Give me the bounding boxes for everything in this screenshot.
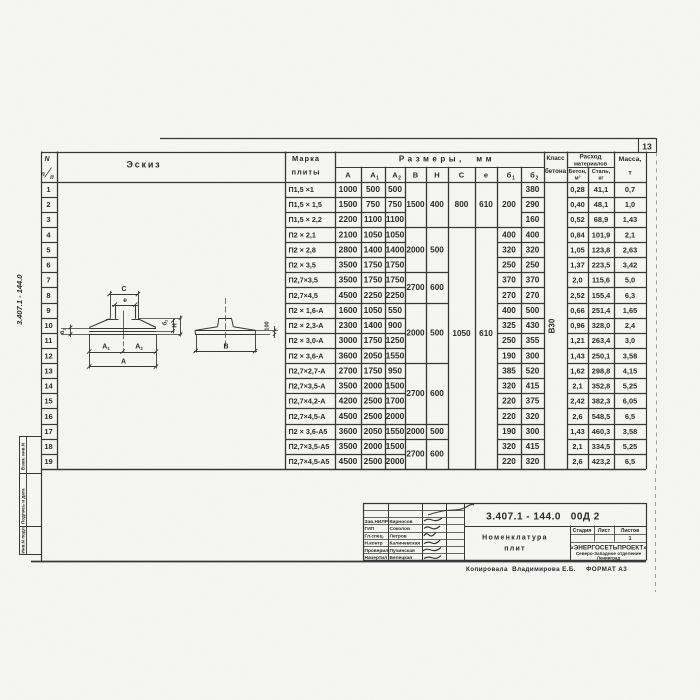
svg-text:2: 2 bbox=[398, 176, 401, 182]
svg-text:6: 6 bbox=[46, 261, 50, 270]
svg-text:1750: 1750 bbox=[364, 275, 383, 285]
svg-text:1600: 1600 bbox=[339, 305, 358, 315]
svg-text:Копировала Владимирова Е.Б.: Копировала Владимирова Е.Б. bbox=[466, 566, 576, 573]
svg-text:3000: 3000 bbox=[339, 335, 358, 345]
svg-text:П2,7×3,5: П2,7×3,5 bbox=[289, 276, 318, 285]
svg-text:2050: 2050 bbox=[364, 350, 383, 360]
svg-text:П2,7×4,2-А: П2,7×4,2-А bbox=[289, 397, 326, 406]
svg-text:кг: кг bbox=[598, 175, 604, 181]
svg-text:190: 190 bbox=[502, 351, 516, 360]
svg-text:1750: 1750 bbox=[364, 365, 383, 375]
svg-text:5,0: 5,0 bbox=[625, 276, 635, 285]
svg-text:2000: 2000 bbox=[406, 245, 425, 254]
svg-text:190: 190 bbox=[502, 427, 516, 436]
svg-text:ФОРМАТ А3: ФОРМАТ А3 bbox=[586, 566, 627, 573]
svg-text:1: 1 bbox=[512, 176, 515, 182]
svg-text:2,0: 2,0 bbox=[572, 276, 582, 285]
svg-text:270: 270 bbox=[526, 291, 540, 300]
svg-text:600: 600 bbox=[430, 450, 444, 459]
svg-text:2,6: 2,6 bbox=[572, 457, 582, 466]
svg-text:1,0: 1,0 bbox=[625, 200, 635, 209]
svg-text:Марка: Марка bbox=[292, 154, 320, 163]
svg-text:220: 220 bbox=[502, 412, 516, 421]
svg-text:200: 200 bbox=[502, 200, 516, 209]
svg-text:500: 500 bbox=[430, 329, 444, 338]
svg-text:9: 9 bbox=[46, 306, 50, 315]
svg-text:1100: 1100 bbox=[364, 214, 383, 224]
svg-text:Листов: Листов bbox=[621, 528, 640, 534]
svg-text:2,42: 2,42 bbox=[570, 397, 584, 406]
svg-text:1500: 1500 bbox=[386, 381, 405, 391]
svg-text:380: 380 bbox=[526, 185, 540, 194]
svg-text:950: 950 bbox=[388, 365, 402, 375]
svg-text:м³: м³ bbox=[574, 174, 580, 181]
svg-text:Зав.НИЛР: Зав.НИЛР bbox=[365, 519, 389, 525]
svg-text:16: 16 bbox=[44, 412, 52, 421]
svg-text:320: 320 bbox=[502, 442, 516, 451]
svg-text:П1,5 × 1,5: П1,5 × 1,5 bbox=[289, 200, 322, 209]
svg-text:1500: 1500 bbox=[406, 200, 425, 209]
svg-text:334,5: 334,5 bbox=[592, 442, 611, 451]
svg-text:300: 300 bbox=[526, 427, 540, 436]
svg-text:2: 2 bbox=[46, 200, 50, 209]
svg-text:3,58: 3,58 bbox=[623, 351, 637, 360]
svg-text:Размеры, мм: Размеры, мм bbox=[399, 155, 495, 164]
svg-text:430: 430 bbox=[526, 321, 540, 330]
svg-text:800: 800 bbox=[455, 200, 469, 209]
svg-text:1550: 1550 bbox=[386, 350, 405, 360]
svg-text:1400: 1400 bbox=[386, 244, 405, 254]
svg-text:270: 270 bbox=[502, 291, 516, 300]
svg-text:2000: 2000 bbox=[364, 381, 383, 391]
svg-text:320: 320 bbox=[526, 457, 540, 466]
svg-text:В: В bbox=[223, 344, 228, 351]
svg-text:Калиневская: Калиневская bbox=[390, 541, 421, 547]
svg-text:375: 375 bbox=[526, 397, 540, 406]
svg-text:2800: 2800 bbox=[339, 244, 358, 254]
svg-text:П2 × 3,6-А5: П2 × 3,6-А5 bbox=[289, 427, 328, 436]
svg-text:415: 415 bbox=[526, 442, 540, 451]
svg-text:328,0: 328,0 bbox=[592, 321, 611, 330]
svg-text:Расход: Расход bbox=[580, 154, 602, 161]
svg-text:1400: 1400 bbox=[364, 244, 383, 254]
svg-text:6,3: 6,3 bbox=[625, 291, 635, 300]
svg-text:1550: 1550 bbox=[386, 426, 405, 436]
svg-text:4500: 4500 bbox=[339, 290, 358, 300]
svg-text:2100: 2100 bbox=[339, 229, 358, 239]
svg-text:3,42: 3,42 bbox=[623, 261, 637, 270]
svg-text:Подпись и дата: Подпись и дата bbox=[20, 488, 25, 524]
svg-text:б: б bbox=[507, 171, 512, 180]
svg-text:0,52: 0,52 bbox=[570, 215, 584, 224]
svg-text:250: 250 bbox=[502, 261, 516, 270]
svg-text:2000: 2000 bbox=[406, 329, 425, 338]
svg-text:4500: 4500 bbox=[339, 411, 358, 421]
svg-text:5,25: 5,25 bbox=[623, 442, 637, 451]
svg-text:415: 415 bbox=[526, 382, 540, 391]
svg-text:3500: 3500 bbox=[339, 441, 358, 451]
svg-text:4200: 4200 bbox=[339, 396, 358, 406]
svg-text:223,5: 223,5 bbox=[592, 261, 611, 270]
svg-text:7: 7 bbox=[46, 276, 50, 285]
svg-text:1,43: 1,43 bbox=[570, 351, 584, 360]
svg-text:220: 220 bbox=[502, 397, 516, 406]
svg-text:3600: 3600 bbox=[339, 350, 358, 360]
svg-text:П2,7×4,5-А5: П2,7×4,5-А5 bbox=[289, 457, 330, 466]
svg-text:3,58: 3,58 bbox=[623, 427, 637, 436]
svg-text:11: 11 bbox=[45, 336, 53, 345]
svg-text:385: 385 bbox=[502, 366, 516, 375]
svg-text:А: А bbox=[345, 171, 351, 180]
svg-text:ГИП: ГИП bbox=[365, 526, 375, 532]
svg-text:1: 1 bbox=[628, 536, 631, 542]
svg-text:400: 400 bbox=[430, 200, 444, 209]
svg-text:2700: 2700 bbox=[406, 389, 425, 398]
svg-text:2250: 2250 bbox=[386, 290, 405, 300]
svg-text:п: п bbox=[50, 175, 54, 181]
svg-text:2700: 2700 bbox=[406, 283, 425, 292]
svg-text:100: 100 bbox=[265, 321, 271, 330]
svg-text:Сталь,: Сталь, bbox=[592, 169, 611, 175]
svg-text:1500: 1500 bbox=[339, 199, 358, 209]
svg-text:C: C bbox=[121, 286, 126, 293]
svg-text:2,6: 2,6 bbox=[572, 412, 582, 421]
svg-text:320: 320 bbox=[526, 245, 540, 254]
svg-text:250,1: 250,1 bbox=[592, 351, 611, 360]
svg-text:750: 750 bbox=[388, 199, 402, 209]
svg-text:6,5: 6,5 bbox=[625, 412, 635, 421]
svg-text:1750: 1750 bbox=[386, 260, 405, 270]
svg-text:П2,7×3,5-А5: П2,7×3,5-А5 bbox=[289, 442, 330, 451]
svg-text:В30: В30 bbox=[548, 318, 557, 333]
svg-text:2,1: 2,1 bbox=[625, 230, 635, 239]
svg-text:3,0: 3,0 bbox=[625, 336, 635, 345]
svg-text:П1,5 ×1: П1,5 ×1 bbox=[289, 185, 314, 194]
svg-text:2500: 2500 bbox=[364, 411, 383, 421]
svg-text:1: 1 bbox=[376, 176, 379, 182]
svg-text:1,37: 1,37 bbox=[570, 261, 584, 270]
svg-text:17: 17 bbox=[44, 427, 52, 436]
svg-text:2700: 2700 bbox=[406, 450, 425, 459]
svg-text:2,1: 2,1 bbox=[572, 382, 582, 391]
svg-text:500: 500 bbox=[366, 184, 380, 194]
svg-text:251,4: 251,4 bbox=[592, 306, 611, 315]
svg-text:548,5: 548,5 bbox=[592, 412, 611, 421]
svg-text:1750: 1750 bbox=[364, 260, 383, 270]
svg-text:Номенклатура: Номенклатура bbox=[482, 535, 548, 542]
svg-text:1750: 1750 bbox=[364, 335, 383, 345]
svg-text:П2 × 3,0-А: П2 × 3,0-А bbox=[289, 336, 324, 345]
svg-text:1250: 1250 bbox=[386, 335, 405, 345]
svg-text:2500: 2500 bbox=[364, 456, 383, 466]
svg-text:2200: 2200 bbox=[339, 214, 358, 224]
svg-text:1750: 1750 bbox=[386, 275, 405, 285]
svg-text:8: 8 bbox=[46, 291, 50, 300]
svg-text:3600: 3600 bbox=[339, 426, 358, 436]
svg-text:С: С bbox=[459, 171, 465, 180]
svg-text:13: 13 bbox=[642, 142, 652, 152]
svg-text:Бетон,: Бетон, bbox=[568, 169, 587, 175]
svg-text:500: 500 bbox=[430, 245, 444, 254]
svg-text:300: 300 bbox=[526, 351, 540, 360]
svg-text:П2,7×4,5: П2,7×4,5 bbox=[289, 291, 318, 300]
svg-text:Инв.N подл.: Инв.N подл. bbox=[20, 526, 25, 553]
svg-text:1,62: 1,62 bbox=[570, 366, 584, 375]
svg-text:3500: 3500 bbox=[339, 381, 358, 391]
svg-text:Кирносов: Кирносов bbox=[390, 519, 413, 525]
svg-text:П1,5 × 2,2: П1,5 × 2,2 bbox=[289, 215, 322, 224]
svg-text:2500: 2500 bbox=[364, 396, 383, 406]
svg-text:2,63: 2,63 bbox=[623, 245, 637, 254]
svg-text:1050: 1050 bbox=[364, 229, 383, 239]
svg-text:0,84: 0,84 bbox=[570, 230, 585, 239]
svg-text:550: 550 bbox=[388, 305, 402, 315]
svg-text:Н: Н bbox=[434, 171, 439, 180]
svg-text:1,21: 1,21 bbox=[570, 336, 584, 345]
svg-text:Лист: Лист bbox=[598, 528, 611, 534]
svg-text:П2,7×3,5-А: П2,7×3,5-А bbox=[289, 382, 326, 391]
svg-text:П2 × 2,8: П2 × 2,8 bbox=[289, 245, 316, 254]
svg-text:Н: Н bbox=[173, 323, 179, 327]
svg-text:е: е bbox=[123, 297, 127, 304]
svg-text:4500: 4500 bbox=[339, 456, 358, 466]
svg-text:1700: 1700 bbox=[386, 396, 405, 406]
svg-text:2050: 2050 bbox=[364, 426, 383, 436]
svg-text:2,1: 2,1 bbox=[572, 442, 582, 451]
svg-text:160: 160 bbox=[526, 215, 540, 224]
svg-text:6,5: 6,5 bbox=[625, 457, 635, 466]
svg-text:Петров: Петров bbox=[390, 533, 407, 539]
svg-text:Гл.спец.: Гл.спец. bbox=[365, 533, 384, 539]
svg-text:460,3: 460,3 bbox=[592, 427, 611, 436]
svg-text:бетона: бетона bbox=[545, 168, 567, 175]
svg-text:5: 5 bbox=[46, 245, 50, 254]
svg-text:3500: 3500 bbox=[339, 275, 358, 285]
svg-text:250: 250 bbox=[502, 336, 516, 345]
svg-text:48,1: 48,1 bbox=[594, 200, 608, 209]
svg-text:115,6: 115,6 bbox=[592, 276, 610, 285]
svg-text:П2 × 2,1: П2 × 2,1 bbox=[289, 230, 316, 239]
svg-text:13: 13 bbox=[44, 366, 52, 375]
svg-text:3: 3 bbox=[46, 215, 50, 224]
svg-text:155,4: 155,4 bbox=[592, 291, 611, 300]
svg-text:1500: 1500 bbox=[386, 441, 405, 451]
svg-text:0,7: 0,7 bbox=[625, 185, 635, 194]
svg-text:2300: 2300 bbox=[339, 320, 358, 330]
svg-text:0,96: 0,96 bbox=[570, 321, 584, 330]
svg-text:2000: 2000 bbox=[386, 456, 405, 466]
svg-text:1050: 1050 bbox=[386, 229, 405, 239]
svg-text:плит: плит bbox=[504, 546, 526, 553]
svg-text:370: 370 bbox=[502, 276, 516, 285]
svg-text:68,9: 68,9 bbox=[594, 215, 608, 224]
svg-text:1100: 1100 bbox=[386, 214, 405, 224]
svg-text:3.407.1 - 144.0: 3.407.1 - 144.0 bbox=[15, 274, 24, 325]
svg-text:18: 18 bbox=[44, 442, 52, 451]
svg-text:325: 325 bbox=[502, 321, 516, 330]
svg-text:370: 370 bbox=[526, 276, 540, 285]
svg-text:1,65: 1,65 bbox=[623, 306, 637, 315]
svg-text:0,28: 0,28 bbox=[570, 185, 584, 194]
svg-text:Проверил: Проверил bbox=[365, 548, 389, 554]
svg-text:352,8: 352,8 bbox=[592, 382, 611, 391]
svg-text:плиты: плиты bbox=[292, 168, 321, 177]
svg-text:Белецкая: Белецкая bbox=[390, 555, 413, 561]
svg-text:2700: 2700 bbox=[339, 365, 358, 375]
svg-text:500: 500 bbox=[430, 427, 444, 436]
svg-text:Н.контр: Н.контр bbox=[365, 541, 383, 547]
svg-text:263,4: 263,4 bbox=[592, 336, 611, 345]
svg-text:15: 15 bbox=[44, 397, 52, 406]
svg-text:П2,7×4,5-А: П2,7×4,5-А bbox=[289, 412, 326, 421]
svg-text:1: 1 bbox=[46, 185, 50, 194]
svg-text:19: 19 bbox=[44, 457, 52, 466]
svg-text:1050: 1050 bbox=[452, 329, 471, 338]
svg-text:3500: 3500 bbox=[339, 260, 358, 270]
svg-text:В: В bbox=[413, 171, 419, 180]
svg-text:101,9: 101,9 bbox=[592, 230, 611, 239]
svg-text:2: 2 bbox=[536, 176, 539, 182]
svg-text:4,15: 4,15 bbox=[623, 366, 637, 375]
svg-text:Пучинская: Пучинская bbox=[390, 548, 415, 554]
svg-text:2250: 2250 bbox=[364, 290, 383, 300]
svg-text:900: 900 bbox=[388, 320, 402, 330]
svg-text:41,1: 41,1 bbox=[594, 185, 608, 194]
svg-text:320: 320 bbox=[502, 245, 516, 254]
svg-text:320: 320 bbox=[502, 382, 516, 391]
svg-text:Ленинград: Ленинград bbox=[597, 555, 620, 560]
svg-text:материалов: материалов bbox=[574, 161, 608, 167]
svg-text:е: е bbox=[484, 171, 488, 180]
svg-text:Масса,: Масса, bbox=[619, 156, 642, 163]
svg-text:2000: 2000 bbox=[364, 441, 383, 451]
svg-text:14: 14 bbox=[44, 382, 53, 391]
svg-text:320: 320 bbox=[526, 412, 540, 421]
svg-text:0,40: 0,40 bbox=[570, 200, 584, 209]
svg-text:П2 × 2,3-А: П2 × 2,3-А bbox=[289, 321, 324, 330]
svg-text:423,2: 423,2 bbox=[592, 457, 611, 466]
svg-text:355: 355 bbox=[526, 336, 540, 345]
svg-text:1,05: 1,05 bbox=[570, 245, 584, 254]
svg-text:600: 600 bbox=[430, 283, 444, 292]
svg-text:298,8: 298,8 bbox=[592, 366, 611, 375]
svg-text:2,52: 2,52 bbox=[570, 291, 584, 300]
svg-text:220: 220 bbox=[502, 457, 516, 466]
svg-text:500: 500 bbox=[526, 306, 540, 315]
svg-text:750: 750 bbox=[366, 199, 380, 209]
svg-text:610: 610 bbox=[479, 329, 493, 338]
svg-text:1050: 1050 bbox=[364, 305, 383, 315]
svg-text:400: 400 bbox=[502, 230, 516, 239]
svg-text:2000: 2000 bbox=[406, 427, 425, 436]
svg-text:400: 400 bbox=[526, 230, 540, 239]
svg-text:520: 520 bbox=[526, 366, 540, 375]
svg-text:610: 610 bbox=[479, 200, 493, 209]
svg-text:П2 × 1,6-А: П2 × 1,6-А bbox=[289, 306, 324, 315]
svg-text:500: 500 bbox=[388, 184, 402, 194]
svg-text:290: 290 bbox=[526, 200, 540, 209]
svg-text:Начертил: Начертил bbox=[365, 555, 388, 561]
svg-text:2,4: 2,4 bbox=[625, 321, 636, 330]
svg-text:250: 250 bbox=[526, 261, 540, 270]
svg-text:П2 × 3,6-А: П2 × 3,6-А bbox=[289, 351, 324, 360]
svg-text:400: 400 bbox=[502, 306, 516, 315]
svg-text:Соколов: Соколов bbox=[390, 526, 410, 532]
svg-text:2000: 2000 bbox=[386, 411, 405, 421]
svg-text:5,25: 5,25 bbox=[623, 382, 637, 391]
svg-text:Класс: Класс bbox=[546, 155, 565, 162]
svg-text:Стадия: Стадия bbox=[573, 528, 592, 534]
svg-text:3.407.1 - 144.0 00Д 2: 3.407.1 - 144.0 00Д 2 bbox=[486, 512, 600, 523]
svg-text:Взам. инв.N: Взам. инв.N bbox=[20, 442, 25, 470]
svg-text:123,8: 123,8 bbox=[592, 245, 611, 254]
svg-text:0,66: 0,66 bbox=[570, 306, 584, 315]
svg-text:1,43: 1,43 bbox=[570, 427, 584, 436]
svg-text:6,05: 6,05 bbox=[623, 397, 637, 406]
svg-text:П2 × 3,5: П2 × 3,5 bbox=[289, 261, 316, 270]
svg-text:1400: 1400 bbox=[364, 320, 383, 330]
svg-text:б: б bbox=[530, 171, 535, 180]
svg-text:П2,7×2,7-А: П2,7×2,7-А bbox=[289, 366, 326, 375]
svg-text:А: А bbox=[121, 359, 126, 366]
svg-text:1,43: 1,43 bbox=[623, 215, 637, 224]
svg-text:Эскиз: Эскиз bbox=[127, 160, 162, 170]
svg-text:600: 600 bbox=[430, 389, 444, 398]
svg-text:10: 10 bbox=[44, 321, 52, 330]
svg-text:382,3: 382,3 bbox=[592, 397, 611, 406]
svg-text:12: 12 bbox=[44, 351, 52, 360]
svg-text:1000: 1000 bbox=[339, 184, 358, 194]
